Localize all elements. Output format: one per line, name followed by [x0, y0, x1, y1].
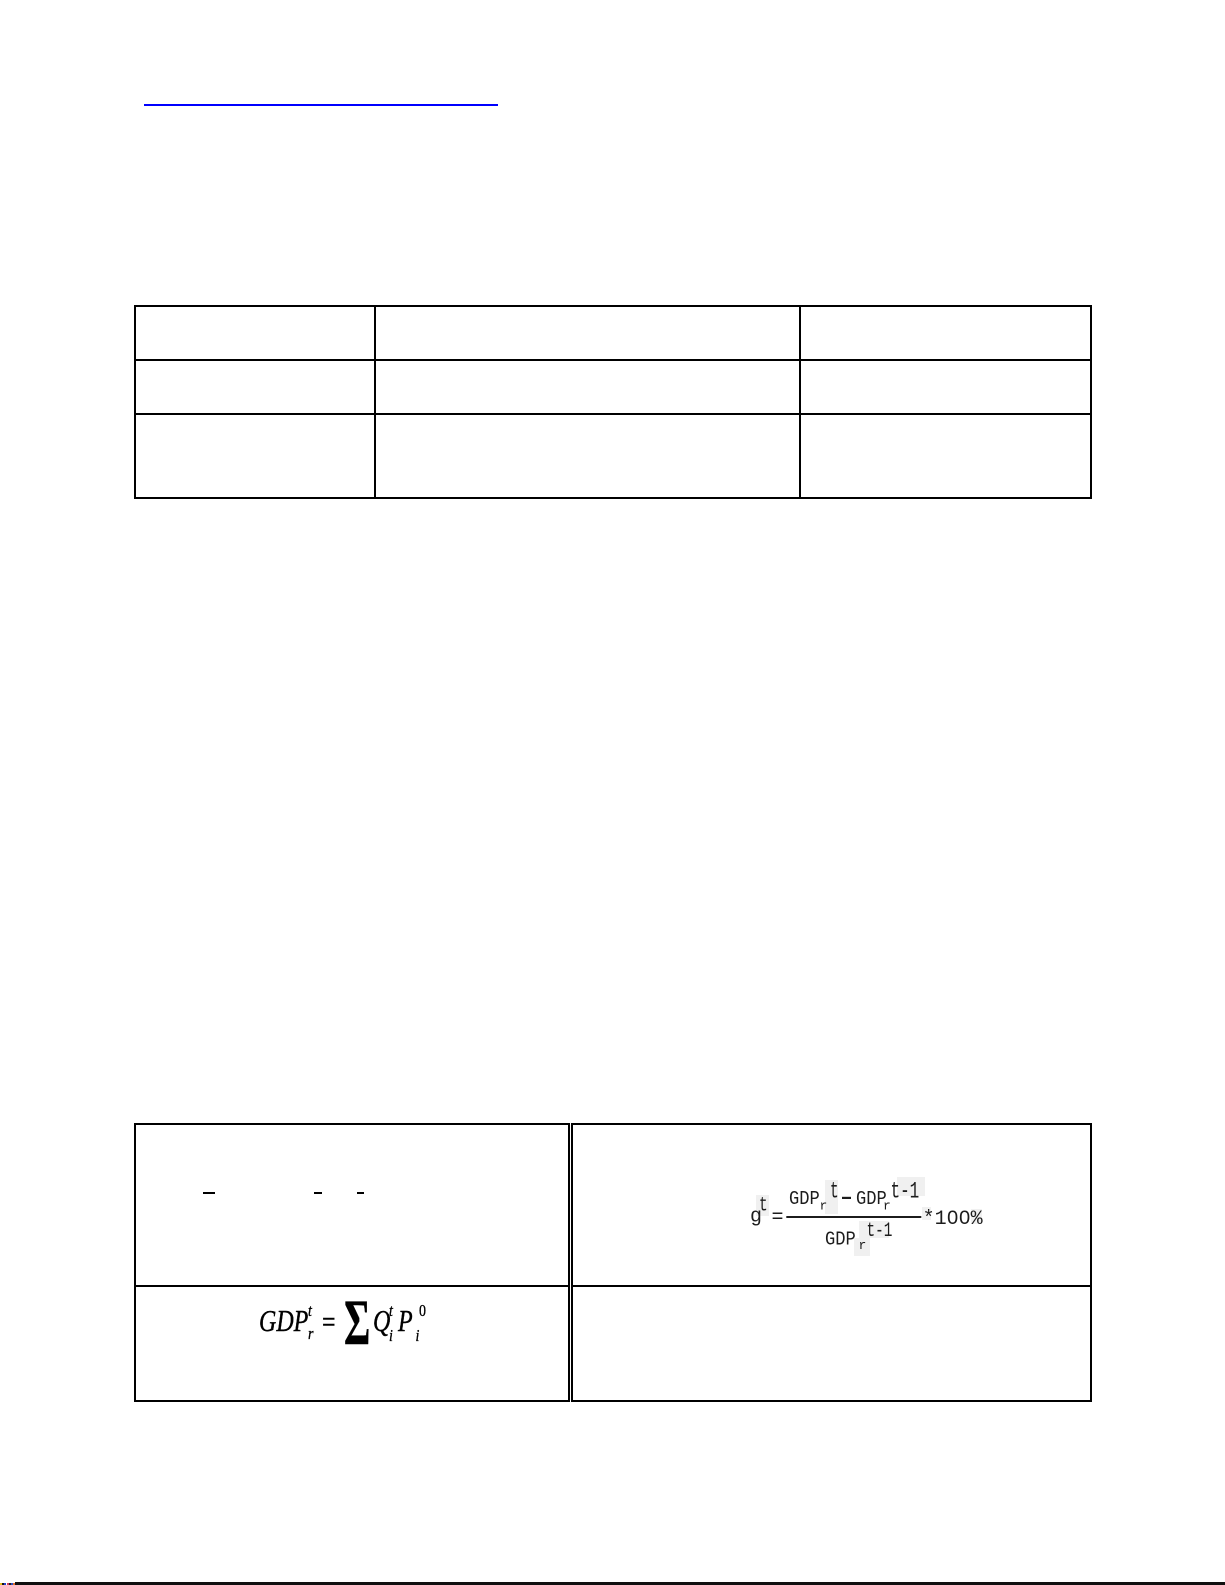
- svg-text:t: t: [308, 1302, 313, 1320]
- svg-text:t: t: [759, 1194, 768, 1217]
- svg-text:r: r: [820, 1199, 828, 1214]
- svg-text:Q: Q: [373, 1304, 390, 1337]
- svg-text:i: i: [389, 1327, 393, 1345]
- svg-text:r: r: [859, 1238, 867, 1253]
- svg-text:Σ: Σ: [344, 1295, 370, 1355]
- svg-text:t-1: t-1: [867, 1220, 893, 1243]
- svg-text:r: r: [308, 1325, 314, 1343]
- svg-text:t-1: t-1: [891, 1178, 920, 1205]
- svg-text:P: P: [397, 1304, 413, 1337]
- svg-text:GDP: GDP: [259, 1304, 309, 1337]
- svg-text:i: i: [416, 1327, 420, 1345]
- svg-text:GDP: GDP: [825, 1230, 856, 1251]
- svg-text:=: =: [772, 1207, 784, 1230]
- svg-text:=: =: [322, 1305, 336, 1338]
- svg-text:t: t: [389, 1302, 394, 1320]
- svg-text:GDP: GDP: [789, 1189, 820, 1210]
- svg-text:0: 0: [419, 1302, 426, 1320]
- svg-text:*100%: *100%: [923, 1208, 984, 1231]
- svg-text:t: t: [830, 1178, 839, 1204]
